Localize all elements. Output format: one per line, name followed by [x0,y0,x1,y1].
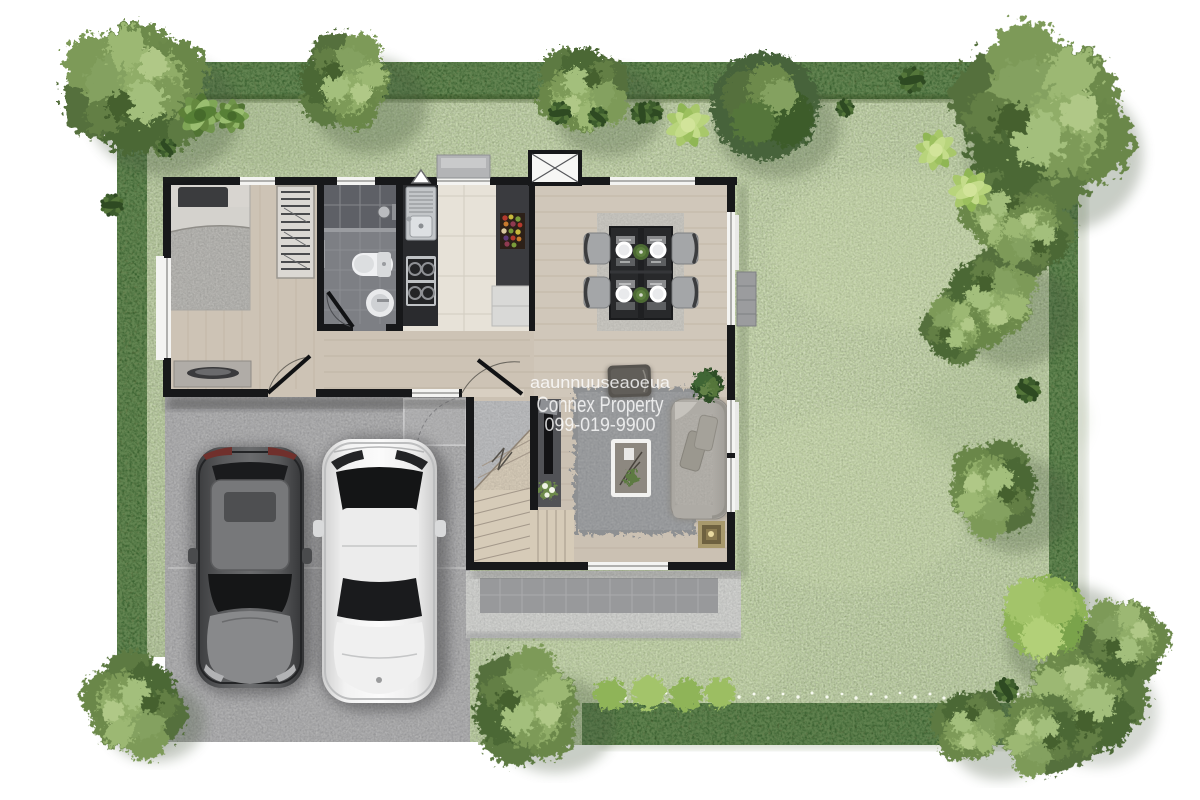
svg-text:Connex Property: Connex Property [537,392,665,417]
svg-text:aaunnuuseaoeua: aaunnuuseaoeua [530,373,671,392]
svg-text:099-019-9900: 099-019-9900 [545,415,656,436]
